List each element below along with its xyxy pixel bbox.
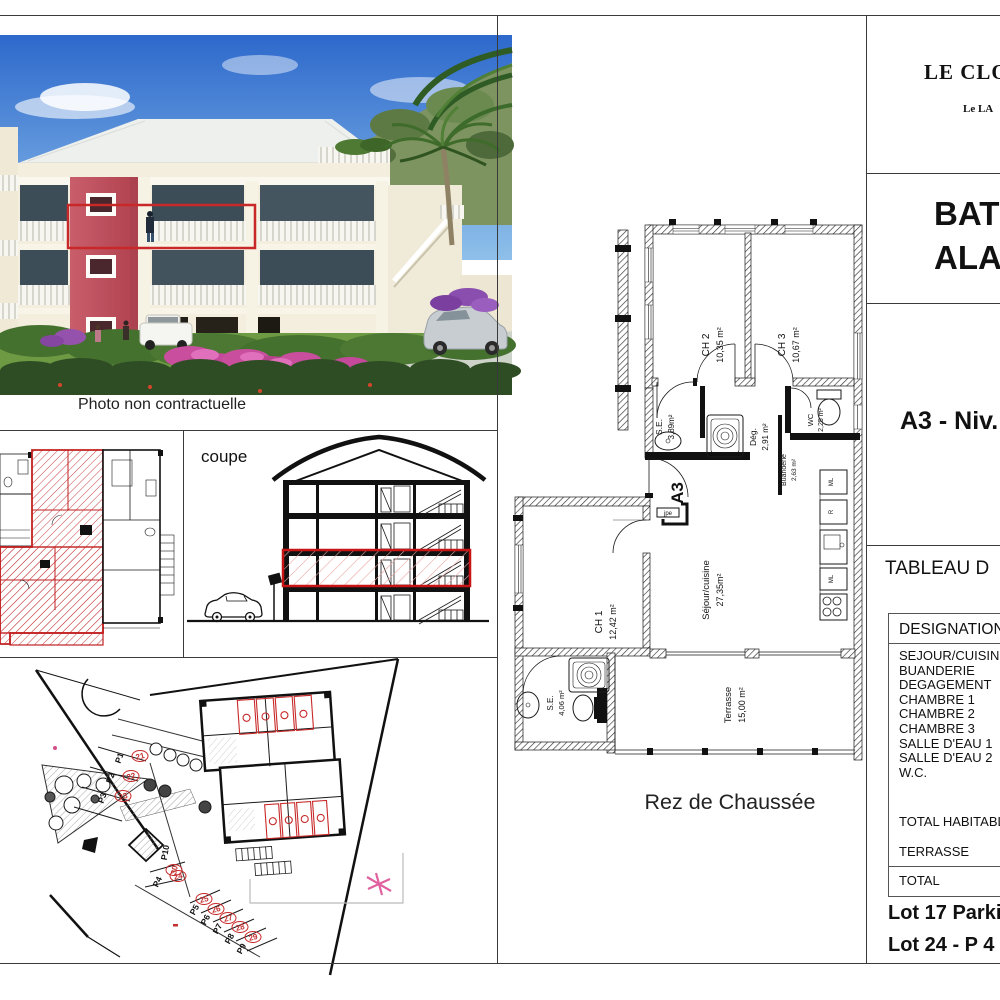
room-label-ch2-name: CH 2: [701, 333, 712, 356]
total-habitable-label: TOTAL HABITABLE: [899, 814, 1000, 829]
surface-table-header: DESIGNATION: [899, 621, 1000, 639]
panel-divider-keyplan: [183, 430, 184, 657]
svg-text:P10: P10: [159, 844, 172, 861]
room-label-ch3-name: CH 3: [777, 333, 788, 356]
deck-diamond: [129, 829, 163, 861]
surface-room-list: SEJOUR/CUISINE BUANDERIE DEGAGEMENT CHAM…: [899, 649, 1000, 780]
svg-text:P8: P8: [222, 931, 236, 945]
keyplan-stair: [160, 535, 174, 595]
coupe-label: coupe: [201, 447, 247, 466]
svg-text:P1: P1: [113, 751, 126, 764]
room-label-deg-area: 2,91 m²: [761, 423, 770, 450]
hedge: [0, 358, 521, 395]
room-label-ch2-area: 10,35 m²: [715, 327, 725, 363]
svg-text:P5: P5: [187, 902, 201, 916]
room-label-deg-name: Dég.: [748, 428, 758, 446]
building-title-line2: ALAM: [934, 239, 1000, 277]
apartment-floor-plan: ML R ML CH 2 10,35 m² CH 3 10,67 m² S.E.…: [497, 175, 867, 825]
title-block-divider-3: [866, 545, 1000, 546]
room-label-se1-area: 3,89m²: [667, 414, 676, 439]
room-row: CHAMBRE 3: [899, 722, 1000, 737]
apartment-ref: A3 jpe: [657, 482, 687, 524]
plan-caption: Rez de Chaussée: [585, 790, 875, 815]
keyplan-highlight-apartment: [0, 450, 103, 645]
surface-table-header-divider: [889, 643, 1000, 644]
room-row: SALLE D'EAU 1: [899, 737, 1000, 752]
title-block-divider-1: [866, 173, 1000, 174]
site-plan: P1 21 P2 22 P3 23 P4 24 P5 25 P6 26 P7 2…: [0, 657, 497, 983]
section-building: [273, 437, 485, 624]
building-title-line1: BATI: [934, 195, 1000, 233]
walkway: [120, 789, 196, 821]
svg-text:30: 30: [169, 864, 180, 875]
panel-divider-siteplan: [0, 657, 497, 658]
title-block-border: [866, 15, 867, 963]
room-label-sejour-name: Séjour/cuisine: [701, 560, 712, 620]
title-block: LE CLOS Le LA BATI ALAM A3 - Niv. TABLEA…: [866, 15, 1000, 963]
svg-text:P4: P4: [151, 875, 165, 889]
room-label-buanderie-name: Buanderie: [781, 454, 788, 486]
room-label-ch3-area: 10,67 m²: [791, 327, 801, 363]
building-photo-render: [0, 35, 512, 395]
section-highlight-rect: [283, 550, 470, 586]
project-subtitle: Le LA: [963, 103, 993, 115]
dark-planting: [82, 837, 98, 853]
room-label-sejour-area: 27,35m²: [715, 573, 725, 606]
plan-doors: [523, 344, 811, 694]
keyplan-neighbor-left: [0, 452, 32, 546]
room-label-terrasse-name: Terrasse: [723, 687, 734, 723]
star-mark: [367, 873, 391, 895]
terrasse-label: TERRASSE: [899, 844, 969, 859]
drawing-sheet: Photo non contractuelle: [0, 0, 1000, 1000]
title-block-divider-2: [866, 303, 1000, 304]
apartment-ref-label: A3: [668, 482, 687, 504]
room-label-ch1-name: CH 1: [594, 610, 605, 633]
panel-divider-photo: [0, 430, 497, 431]
appliance-ml2: ML: [829, 574, 835, 583]
room-label-buanderie-area: 2,63 m²: [791, 458, 798, 481]
entrance-door-tag: jpe: [663, 511, 673, 517]
room-label-se2-area: 4,06 m²: [557, 690, 566, 716]
sheet-border-bottom: [0, 963, 1000, 964]
total-label: TOTAL: [899, 873, 940, 888]
section-car: [205, 593, 262, 622]
room-label-wc-name: WC: [806, 413, 815, 426]
table-title: TABLEAU D: [885, 558, 989, 580]
room-row: DEGAGEMENT: [899, 678, 1000, 693]
svg-text:P7: P7: [210, 921, 224, 935]
room-row: BUANDERIE: [899, 664, 1000, 679]
project-title: LE CLOS: [924, 60, 1000, 85]
room-row: CHAMBRE 2: [899, 707, 1000, 722]
sheet-border-top: [0, 15, 1000, 16]
site-stairs: [236, 845, 292, 877]
surface-table: DESIGNATION SEJOUR/CUISINE BUANDERIE DEG…: [888, 613, 1000, 897]
site-building: [200, 692, 347, 879]
lot-line-1: Lot 17 Parki: [888, 902, 1000, 925]
room-label-wc-area: 2,25 m²: [818, 407, 825, 431]
room-label-terrasse-area: 15,00 m²: [737, 687, 747, 723]
kitchen-strip: ML R ML: [820, 470, 847, 620]
level-ref: A3 - Niv.: [900, 407, 998, 436]
room-row: SEJOUR/CUISINE: [899, 649, 1000, 664]
room-row: CHAMBRE 1: [899, 693, 1000, 708]
room-label-ch1-area: 12,42 m²: [608, 604, 618, 640]
photo-caption: Photo non contractuelle: [0, 396, 324, 414]
coupe-section: coupe: [183, 428, 497, 657]
room-label-se1-name: S.E.: [654, 419, 664, 435]
panel-divider-center: [497, 15, 498, 963]
room-label-se2-name: S.E.: [546, 695, 555, 710]
room-row: W.C.: [899, 766, 1000, 781]
section-lamp: [268, 573, 282, 621]
appliance-ml1: ML: [829, 477, 835, 486]
key-plan: [0, 430, 183, 658]
svg-text:P6: P6: [198, 912, 212, 926]
appliance-r: R: [829, 509, 835, 514]
room-row: SALLE D'EAU 2: [899, 751, 1000, 766]
surface-table-total-divider: [889, 866, 1000, 867]
keyplan-neighbor-right: [103, 450, 174, 628]
lot-line-2: Lot 24 - P 4: [888, 934, 994, 957]
